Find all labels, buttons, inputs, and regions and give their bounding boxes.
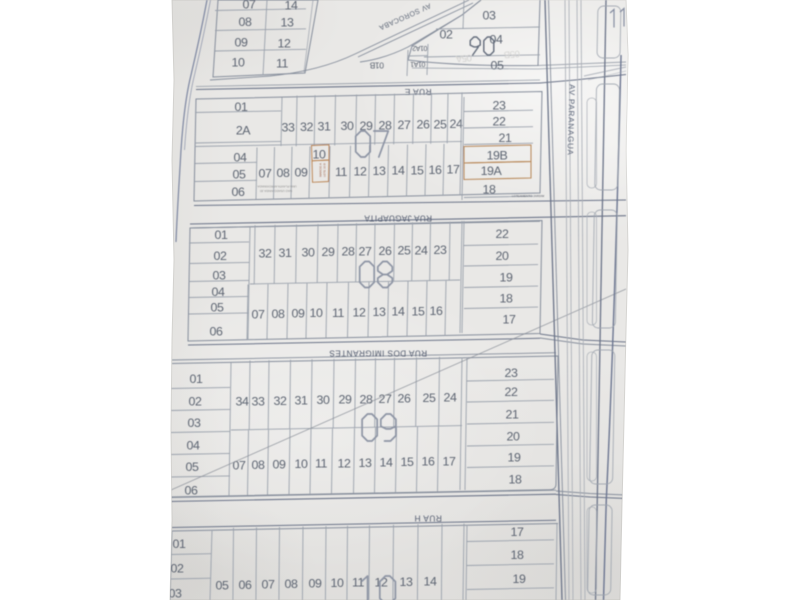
svg-text:04: 04 xyxy=(234,150,247,164)
svg-text:RUA JAGUAPITA: RUA JAGUAPITA xyxy=(364,214,432,223)
svg-text:19B: 19B xyxy=(487,148,508,162)
svg-text:32: 32 xyxy=(300,120,313,134)
svg-text:15: 15 xyxy=(412,304,425,318)
svg-text:05B: 05B xyxy=(504,48,520,60)
svg-text:09: 09 xyxy=(295,166,308,180)
svg-text:22: 22 xyxy=(505,385,518,399)
svg-text:08: 08 xyxy=(272,307,285,321)
svg-text:11: 11 xyxy=(315,457,328,471)
svg-text:26: 26 xyxy=(379,244,392,258)
svg-text:31: 31 xyxy=(318,120,331,134)
svg-text:07: 07 xyxy=(252,307,265,321)
svg-text:14: 14 xyxy=(392,305,405,319)
svg-text:06: 06 xyxy=(210,324,223,338)
svg-text:17: 17 xyxy=(511,525,524,539)
svg-text:32: 32 xyxy=(274,394,287,408)
svg-text:09: 09 xyxy=(292,307,305,321)
svg-text:27: 27 xyxy=(398,118,411,132)
svg-text:16: 16 xyxy=(429,163,442,177)
svg-text:02: 02 xyxy=(214,249,227,263)
svg-text:31: 31 xyxy=(295,394,308,408)
svg-text:19: 19 xyxy=(508,450,521,464)
svg-text:10: 10 xyxy=(232,55,245,69)
svg-text:04: 04 xyxy=(212,285,225,299)
svg-text:13: 13 xyxy=(359,456,372,470)
svg-text:05: 05 xyxy=(211,300,224,314)
svg-text:10: 10 xyxy=(331,576,344,590)
svg-text:01: 01 xyxy=(173,537,186,551)
svg-text:31: 31 xyxy=(279,246,292,260)
svg-text:11: 11 xyxy=(352,576,365,590)
svg-text:30: 30 xyxy=(341,119,354,133)
svg-text:12: 12 xyxy=(353,305,366,319)
svg-text:LOTE 10 B: LOTE 10 B xyxy=(323,163,327,177)
svg-text:18: 18 xyxy=(483,182,496,196)
svg-text:11: 11 xyxy=(335,165,348,179)
svg-text:21: 21 xyxy=(506,407,519,421)
svg-text:19: 19 xyxy=(500,270,513,284)
svg-text:07: 07 xyxy=(233,458,246,472)
svg-text:14: 14 xyxy=(424,574,437,588)
svg-text:23: 23 xyxy=(505,366,518,380)
svg-text:07: 07 xyxy=(262,577,275,591)
svg-text:29: 29 xyxy=(339,393,352,407)
svg-text:AV PARANAGUA: AV PARANAGUA xyxy=(566,84,577,156)
svg-text:21: 21 xyxy=(499,131,512,145)
svg-text:09: 09 xyxy=(235,35,248,49)
svg-text:33: 33 xyxy=(282,120,295,134)
svg-text:30: 30 xyxy=(317,393,330,407)
svg-text:27: 27 xyxy=(359,244,372,258)
svg-text:05: 05 xyxy=(186,460,199,474)
svg-text:02: 02 xyxy=(171,561,184,575)
svg-text:NAO USADO AINDA JD: NAO USADO AINDA JD xyxy=(259,189,292,193)
svg-text:03: 03 xyxy=(169,586,182,600)
svg-text:08: 08 xyxy=(277,166,290,180)
svg-text:04: 04 xyxy=(187,438,200,452)
svg-text:05: 05 xyxy=(491,58,504,72)
svg-text:17: 17 xyxy=(447,163,460,177)
svg-text:23: 23 xyxy=(434,243,447,257)
svg-text:02: 02 xyxy=(440,27,453,41)
svg-text:01: 01 xyxy=(215,228,228,242)
svg-text:25: 25 xyxy=(423,391,436,405)
svg-text:05A: 05A xyxy=(455,52,472,64)
svg-text:28: 28 xyxy=(342,245,355,259)
svg-text:16: 16 xyxy=(422,455,435,469)
svg-text:06: 06 xyxy=(239,578,252,592)
svg-text:07: 07 xyxy=(259,166,272,180)
svg-text:01: 01 xyxy=(190,372,203,386)
svg-text:20: 20 xyxy=(507,429,520,443)
svg-text:18: 18 xyxy=(511,548,524,562)
svg-text:13: 13 xyxy=(281,15,294,29)
svg-text:19A: 19A xyxy=(481,164,503,178)
svg-text:13: 13 xyxy=(373,305,386,319)
svg-text:09: 09 xyxy=(273,458,286,472)
svg-text:14: 14 xyxy=(392,164,405,178)
svg-text:16: 16 xyxy=(430,304,443,318)
svg-text:33: 33 xyxy=(252,394,265,408)
svg-text:13: 13 xyxy=(373,164,386,178)
svg-text:2A: 2A xyxy=(236,123,251,137)
svg-text:09: 09 xyxy=(309,577,322,591)
svg-text:12: 12 xyxy=(354,165,367,179)
svg-text:28: 28 xyxy=(360,392,373,406)
svg-text:12: 12 xyxy=(338,456,351,470)
svg-text:29: 29 xyxy=(322,245,335,259)
svg-text:06: 06 xyxy=(185,483,198,497)
svg-text:01B: 01B xyxy=(369,61,384,71)
svg-text:24: 24 xyxy=(415,243,428,257)
svg-text:19: 19 xyxy=(513,572,526,586)
svg-text:12: 12 xyxy=(278,36,291,50)
svg-text:01A1: 01A1 xyxy=(410,60,425,67)
svg-text:02: 02 xyxy=(189,394,202,408)
svg-text:03: 03 xyxy=(188,416,201,430)
svg-text:22: 22 xyxy=(493,114,506,128)
svg-text:18: 18 xyxy=(500,291,513,305)
svg-text:13: 13 xyxy=(400,575,413,589)
svg-text:07: 07 xyxy=(243,0,256,11)
svg-text:10: 10 xyxy=(313,147,326,161)
svg-text:10: 10 xyxy=(295,457,308,471)
svg-text:24: 24 xyxy=(444,391,457,405)
svg-text:08: 08 xyxy=(239,15,252,29)
svg-text:11: 11 xyxy=(276,56,289,70)
svg-text:27: 27 xyxy=(379,392,392,406)
svg-text:RUA DOS IMIGRANTES: RUA DOS IMIGRANTES xyxy=(329,349,427,358)
svg-text:15: 15 xyxy=(401,455,414,469)
svg-text:LOTEAMENTO JARDIM: LOTEAMENTO JARDIM xyxy=(512,194,545,198)
svg-text:20: 20 xyxy=(496,249,509,263)
svg-text:06: 06 xyxy=(232,185,245,199)
svg-text:10: 10 xyxy=(310,306,323,320)
svg-text:UMA PLANTA APROXIMADA: UMA PLANTA APROXIMADA xyxy=(257,185,296,189)
svg-text:12: 12 xyxy=(375,575,388,589)
svg-text:05: 05 xyxy=(216,578,229,592)
svg-text:32: 32 xyxy=(259,246,272,260)
svg-text:08: 08 xyxy=(285,577,298,591)
svg-text:23: 23 xyxy=(493,98,506,112)
svg-text:15: 15 xyxy=(411,163,424,177)
svg-text:26: 26 xyxy=(398,392,411,406)
svg-text:18: 18 xyxy=(509,472,522,486)
svg-text:RUA H: RUA H xyxy=(414,514,442,524)
svg-text:14: 14 xyxy=(380,456,393,470)
svg-text:17: 17 xyxy=(443,454,456,468)
svg-text:01A2: 01A2 xyxy=(412,44,427,51)
svg-text:25: 25 xyxy=(398,244,411,258)
svg-text:34: 34 xyxy=(236,395,249,409)
svg-text:11: 11 xyxy=(332,306,345,320)
svg-text:08: 08 xyxy=(252,458,265,472)
svg-text:03: 03 xyxy=(213,268,226,282)
svg-text:14: 14 xyxy=(285,0,298,12)
svg-text:30: 30 xyxy=(302,246,315,260)
svg-text:25: 25 xyxy=(434,117,447,131)
svg-text:01: 01 xyxy=(235,100,248,114)
svg-text:RUA E: RUA E xyxy=(404,87,431,97)
svg-text:05: 05 xyxy=(233,167,246,181)
svg-text:26: 26 xyxy=(417,118,430,132)
svg-text:22: 22 xyxy=(496,227,509,241)
svg-text:03: 03 xyxy=(483,8,496,22)
svg-text:17: 17 xyxy=(503,312,516,326)
